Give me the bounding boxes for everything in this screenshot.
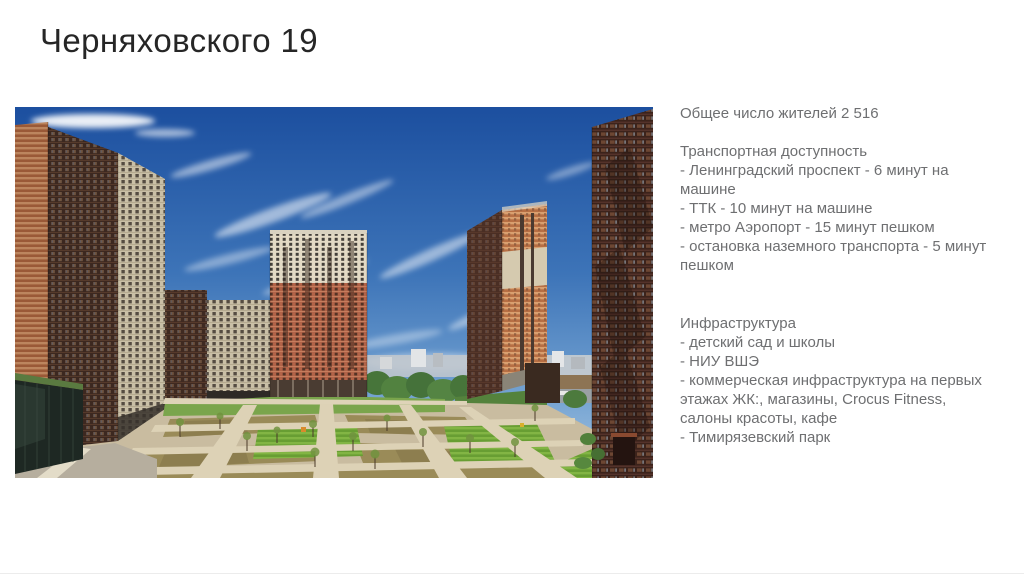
transport-section: Транспортная доступность - Ленинградский…	[680, 142, 988, 275]
complex-photo-illustration	[15, 107, 653, 478]
far-right-building	[592, 109, 653, 478]
transport-item: - Ленинградский проспект - 6 минут на ма…	[680, 161, 988, 199]
infrastructure-item: - коммерческая инфраструктура на первых …	[680, 371, 988, 428]
transport-item: - ТТК - 10 минут на машине	[680, 199, 988, 218]
infrastructure-item: - Тимирязевский парк	[680, 428, 988, 447]
residents-count: Общее число жителей 2 516	[680, 104, 988, 123]
right-tower	[467, 201, 560, 403]
complex-photo	[15, 107, 653, 478]
transport-item: - остановка наземного транспорта - 5 мин…	[680, 237, 988, 275]
transport-item: - метро Аэропорт - 15 минут пешком	[680, 218, 988, 237]
infrastructure-item: - НИУ ВШЭ	[680, 352, 988, 371]
infrastructure-item: - детский сад и школы	[680, 333, 988, 352]
transport-heading: Транспортная доступность	[680, 142, 988, 161]
infrastructure-section: Инфраструктура - детский сад и школы - Н…	[680, 314, 988, 447]
page-title: Черняховского 19	[40, 22, 318, 60]
info-panel: Общее число жителей 2 516 Транспортная д…	[680, 104, 988, 447]
presentation-slide: Черняховского 19	[0, 0, 1024, 574]
infrastructure-heading: Инфраструктура	[680, 314, 988, 333]
center-tower	[270, 230, 367, 398]
